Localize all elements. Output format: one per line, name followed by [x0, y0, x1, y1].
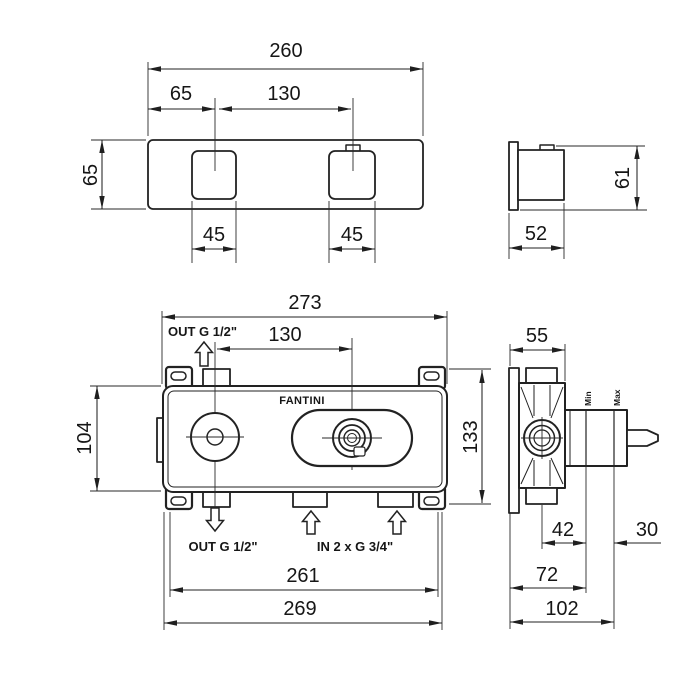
flow-arrow-down-icon	[207, 508, 224, 531]
dim-trim-height: 65	[80, 140, 146, 209]
dim-text-65-offset: 65	[170, 83, 192, 105]
dim-depth-min: 72	[510, 564, 586, 591]
dim-text-261: 261	[286, 565, 319, 587]
dim-text-52: 52	[525, 223, 547, 245]
side-wall-plate	[509, 142, 518, 210]
label-max: Max	[612, 389, 622, 406]
dim-rough-height-overall: 133	[449, 369, 491, 504]
dim-text-55: 55	[526, 325, 548, 347]
dim-depth-max: 102	[510, 598, 614, 625]
trim-plate	[148, 140, 423, 209]
drawing-svg: 260 65 130 65 45	[0, 0, 700, 700]
dim-text-269: 269	[283, 598, 316, 620]
dim-text-273: 273	[288, 292, 321, 314]
dim-text-72: 72	[536, 564, 558, 586]
label-out-top: OUT G 1/2"	[168, 324, 237, 339]
dim-min-to-max: 30	[614, 519, 661, 546]
label-min: Min	[583, 391, 593, 406]
dim-text-260: 260	[269, 40, 302, 62]
cartridge-notch	[354, 447, 365, 456]
right-handle	[329, 151, 375, 199]
left-handle	[192, 151, 236, 199]
dim-rough-height-body: 104	[74, 386, 161, 491]
flow-arrow-up-inlet2-icon	[389, 511, 406, 534]
dim-text-45-right: 45	[341, 224, 363, 246]
flow-arrow-up-inlet1-icon	[303, 511, 320, 534]
cartridge-spindle	[627, 430, 658, 446]
trim-side-view: 61 52	[509, 142, 647, 259]
dim-rough-spacing: 130	[217, 324, 352, 352]
brand-logo: FANTINI	[279, 395, 325, 407]
dim-left-handle: 45	[192, 201, 236, 263]
label-out-bottom: OUT G 1/2"	[188, 539, 257, 554]
side-bottom-stub	[526, 488, 557, 504]
technical-drawing-canvas: 260 65 130 65 45	[0, 0, 700, 700]
dim-trim-side-depth: 52	[509, 203, 564, 259]
label-inlets: IN 2 x G 3/4"	[317, 539, 393, 554]
side-top-stub	[526, 368, 557, 383]
dim-text-130-rough: 130	[268, 324, 301, 346]
dim-text-130-trim: 130	[267, 83, 300, 105]
dim-text-30: 30	[636, 519, 658, 541]
dim-trim-offset: 65	[148, 83, 215, 112]
dim-center-to-min: 42	[542, 519, 586, 546]
side-mount-plate	[509, 368, 519, 513]
side-handle-body	[518, 150, 564, 200]
dim-text-42: 42	[552, 519, 574, 541]
dim-text-45-left: 45	[203, 224, 225, 246]
dim-text-65-height: 65	[80, 164, 102, 186]
dim-right-handle: 45	[329, 201, 375, 263]
trim-front-view: 260 65 130 65 45	[80, 40, 423, 263]
dim-trim-spacing: 130	[219, 83, 351, 112]
dim-text-102: 102	[545, 598, 578, 620]
rough-front-view: FANTINI 273 OUT G 1/2"	[74, 292, 491, 630]
dim-text-104: 104	[74, 421, 96, 454]
dim-text-61: 61	[612, 167, 634, 189]
cartridge-sleeve	[565, 410, 658, 466]
rough-side-view: 55 Min Max	[509, 325, 661, 629]
flow-arrow-up-top-icon	[196, 342, 213, 366]
dim-text-133: 133	[460, 420, 482, 453]
